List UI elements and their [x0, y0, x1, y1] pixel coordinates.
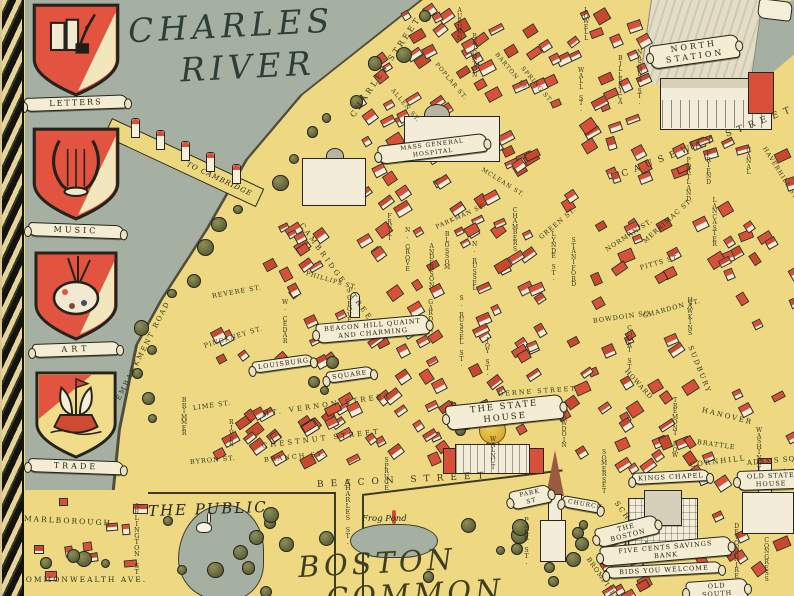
banner-louisburg: LOUISBURG [251, 353, 314, 374]
banner-north-station: NORTH STATION [648, 34, 740, 70]
banner-old-state-house: OLD STATE HOUSE [737, 469, 794, 492]
banner-square: SQUARE [325, 365, 374, 384]
banner-kings-chapel: KINGS CHAPEL [632, 469, 711, 485]
banner-old-south: OLD SOUTH [685, 578, 748, 596]
banner-the-state-house: THE STATE HOUSE [445, 394, 565, 431]
banner-mass-general-hospital: MASS GENERAL HOSPITAL [377, 133, 488, 165]
banner-beacon-hill: BEACON HILL QUAINT AND CHARMING [315, 314, 430, 344]
letters-shield [30, 2, 122, 98]
banner-park-st: PARK ST [508, 483, 553, 510]
banner-church: CHURCH [561, 495, 602, 513]
music-shield [30, 126, 122, 222]
art-shield [30, 250, 122, 342]
rope-border [0, 0, 24, 596]
pictorial-map-boston: TO CAMBRIDGE CHARLES STREETA U B U R NB … [0, 0, 794, 596]
trade-shield [30, 370, 122, 460]
